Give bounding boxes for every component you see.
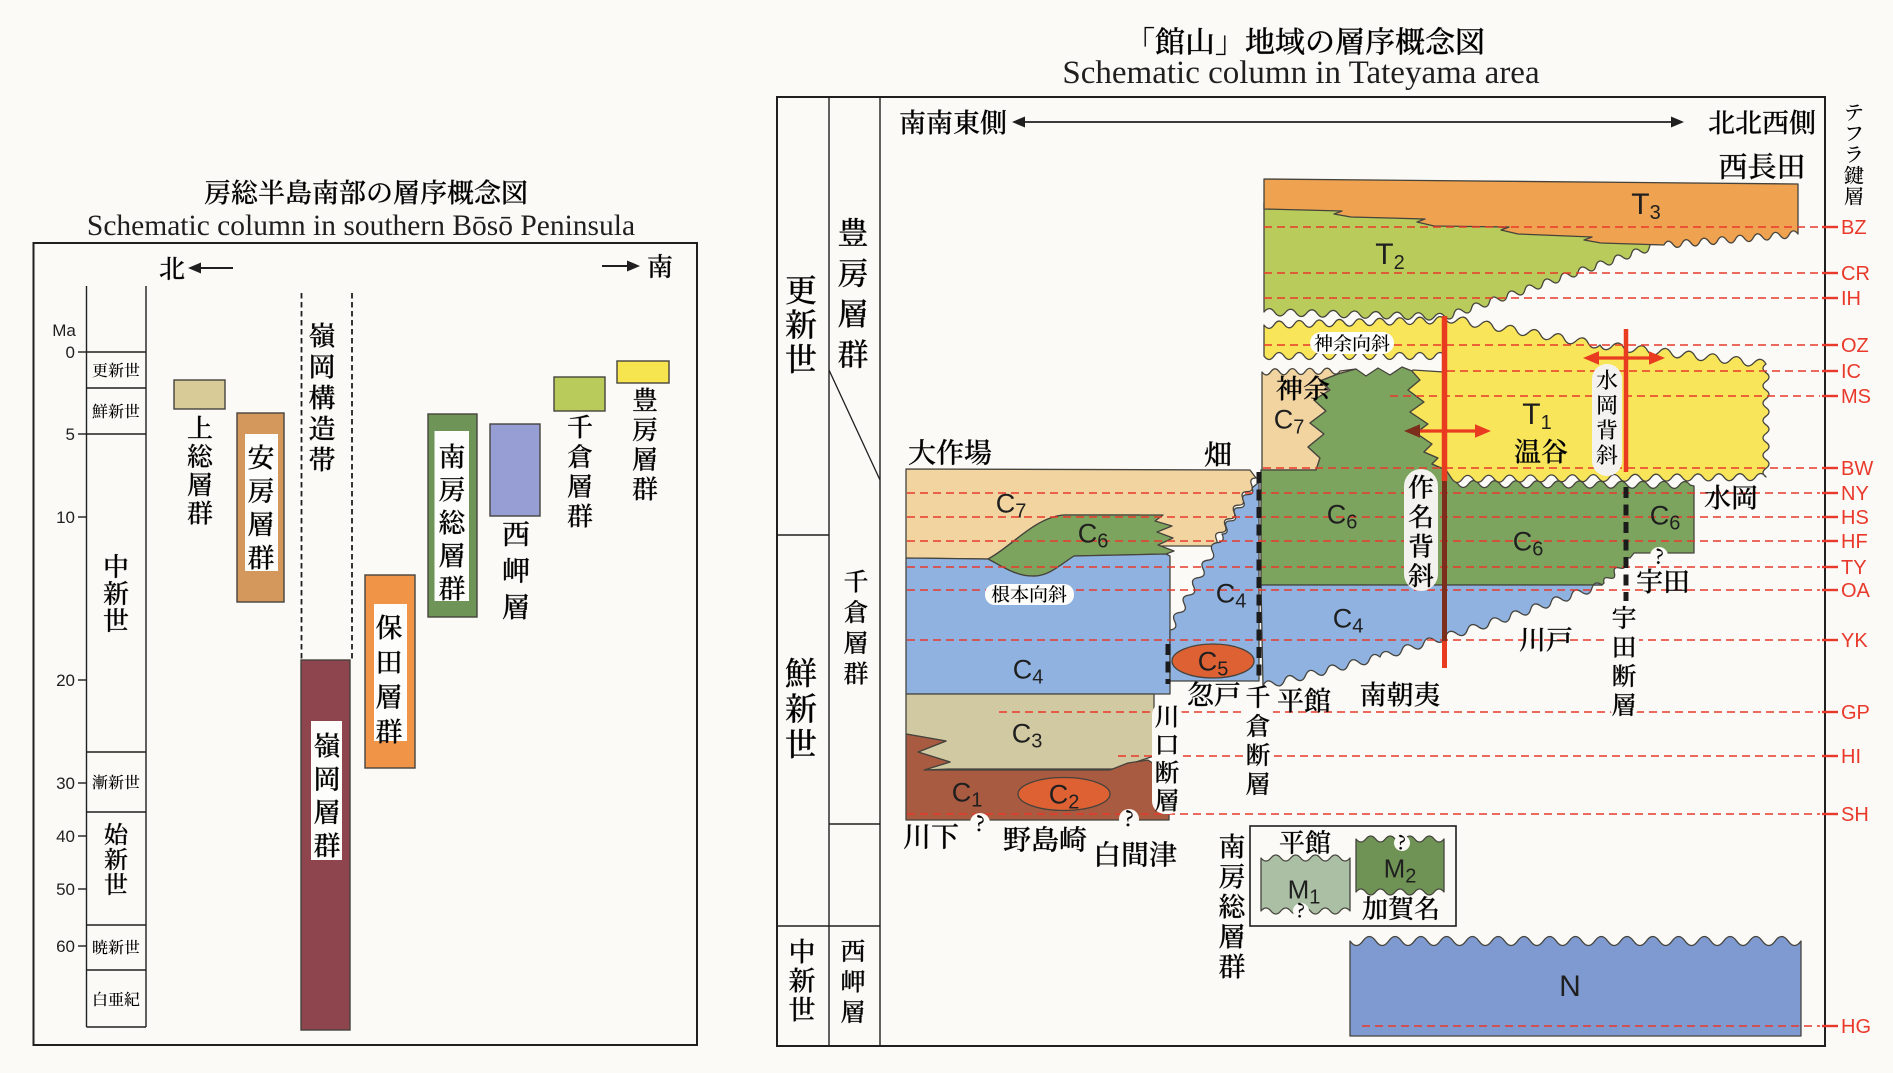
svg-text:BZ: BZ <box>1841 217 1867 239</box>
svg-text:Ma: Ma <box>52 321 76 340</box>
svg-text:40: 40 <box>56 827 75 846</box>
svg-text:OZ: OZ <box>1841 335 1869 357</box>
svg-text:BW: BW <box>1841 458 1873 480</box>
svg-text:TY: TY <box>1841 557 1867 579</box>
svg-text:IH: IH <box>1841 288 1861 310</box>
svg-text:IC: IC <box>1841 361 1861 383</box>
svg-text:OA: OA <box>1841 580 1871 602</box>
svg-text:MS: MS <box>1841 386 1871 408</box>
svg-text:GP: GP <box>1841 702 1870 724</box>
svg-text:10: 10 <box>56 508 75 527</box>
svg-text:30: 30 <box>56 774 75 793</box>
svg-text:Schematic column in southern B: Schematic column in southern Bōsō Penins… <box>87 210 635 242</box>
svg-text:60: 60 <box>56 937 75 956</box>
svg-text:20: 20 <box>56 671 75 690</box>
svg-text:HI: HI <box>1841 746 1861 768</box>
svg-text:N: N <box>1559 970 1581 1003</box>
svg-text:SH: SH <box>1841 804 1869 826</box>
svg-text:HF: HF <box>1841 531 1868 553</box>
svg-text:HS: HS <box>1841 507 1869 529</box>
svg-text:CR: CR <box>1841 263 1870 285</box>
svg-text:YK: YK <box>1841 630 1868 652</box>
svg-text:0: 0 <box>66 343 75 362</box>
svg-text:50: 50 <box>56 880 75 899</box>
svg-text:HG: HG <box>1841 1016 1871 1038</box>
svg-text:Schematic column in Tateyama a: Schematic column in Tateyama area <box>1062 55 1540 91</box>
svg-text:NY: NY <box>1841 483 1869 505</box>
svg-text:5: 5 <box>66 425 75 444</box>
